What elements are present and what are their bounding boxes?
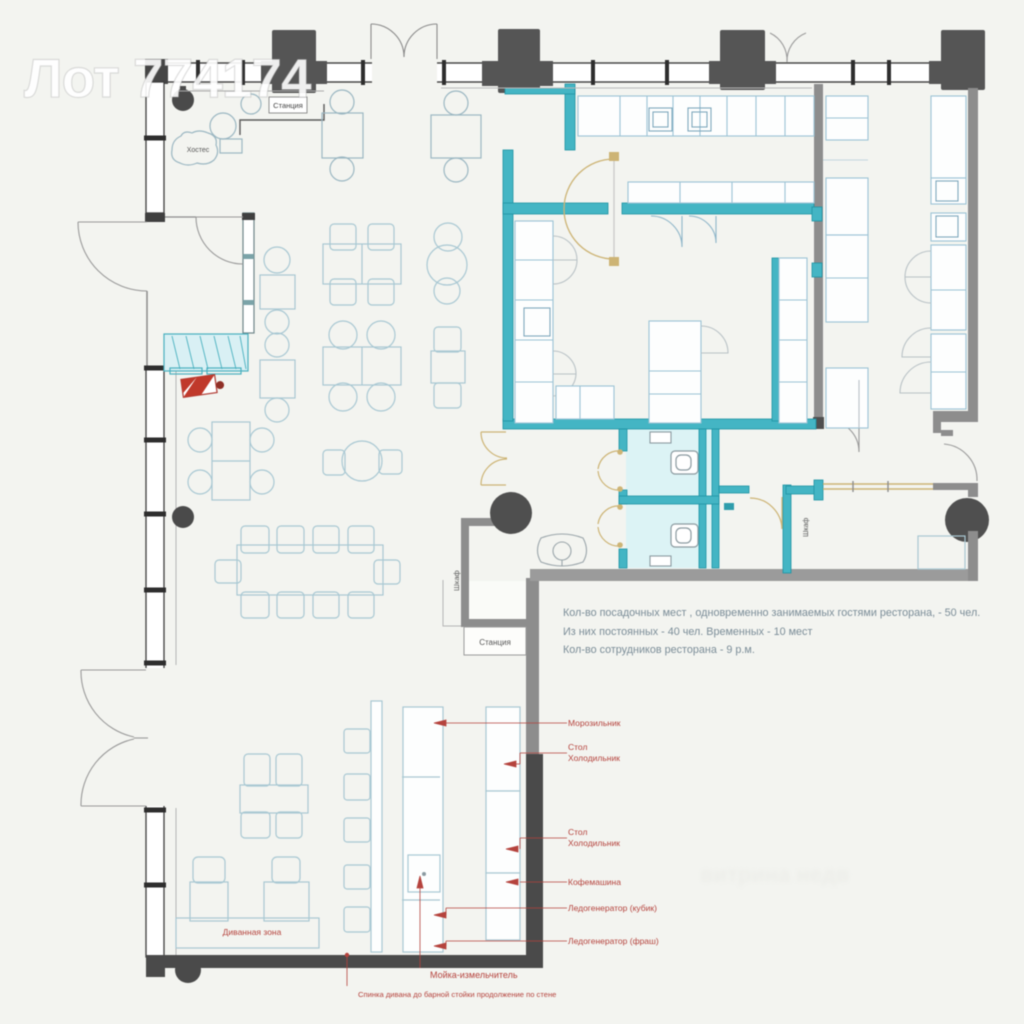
svg-text:Кол-во сотрудников ресторана -: Кол-во сотрудников ресторана - 9 р.м. <box>563 644 755 656</box>
svg-text:Диванная зона: Диванная зона <box>223 927 282 937</box>
svg-text:витрина недв: витрина недв <box>700 862 849 887</box>
svg-text:Шкаф: Шкаф <box>452 570 461 591</box>
svg-text:Холодильник: Холодильник <box>568 838 620 848</box>
svg-text:Спинка дивана до барной стойки: Спинка дивана до барной стойки продолжен… <box>358 990 556 999</box>
svg-text:Стол: Стол <box>568 827 587 837</box>
svg-text:Лот 774174: Лот 774174 <box>24 47 312 109</box>
svg-text:Хостес: Хостес <box>187 147 210 154</box>
svg-text:Кофемашина: Кофемашина <box>568 877 621 887</box>
svg-text:Ледогенератор (фраш): Ледогенератор (фраш) <box>568 936 659 946</box>
svg-text:Кол-во посадочных мест , однов: Кол-во посадочных мест , одновременно за… <box>563 607 980 619</box>
svg-text:Из них постоянных - 40 чел. Вр: Из них постоянных - 40 чел. Временных - … <box>563 626 812 638</box>
svg-text:Шкаф: Шкаф <box>803 517 810 537</box>
svg-text:Станция: Станция <box>479 638 511 647</box>
svg-text:Мойка-измельчитель: Мойка-измельчитель <box>430 970 518 980</box>
svg-text:Ледогенератор (кубик): Ледогенератор (кубик) <box>568 903 657 913</box>
svg-text:Морозильник: Морозильник <box>568 718 621 728</box>
svg-text:Холодильник: Холодильник <box>568 753 620 763</box>
svg-text:Стол: Стол <box>568 742 587 752</box>
